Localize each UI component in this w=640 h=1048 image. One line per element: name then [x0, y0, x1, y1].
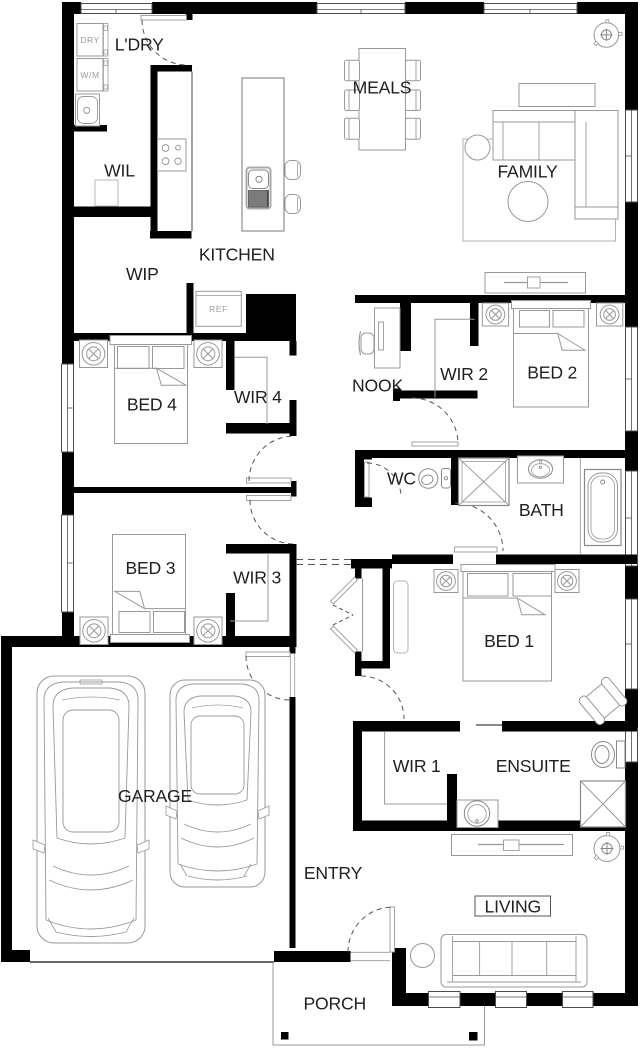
svg-text:ENSUITE: ENSUITE — [496, 756, 571, 776]
svg-text:PORCH: PORCH — [304, 994, 367, 1014]
svg-text:GARAGE: GARAGE — [118, 786, 192, 806]
svg-text:REF: REF — [209, 304, 228, 314]
svg-text:WIR 1: WIR 1 — [393, 756, 441, 776]
svg-text:NOOK: NOOK — [352, 376, 403, 396]
svg-text:L'DRY: L'DRY — [115, 35, 164, 55]
svg-text:WIL: WIL — [104, 160, 135, 180]
svg-text:BATH: BATH — [519, 500, 564, 520]
svg-text:DRY: DRY — [80, 35, 100, 45]
svg-text:ENTRY: ENTRY — [304, 863, 363, 883]
svg-text:BED 1: BED 1 — [484, 631, 534, 651]
svg-text:FAMILY: FAMILY — [497, 162, 558, 182]
svg-text:WIP: WIP — [126, 264, 159, 284]
svg-text:BED 3: BED 3 — [125, 558, 175, 578]
svg-text:BED 4: BED 4 — [127, 395, 177, 415]
svg-text:WIR 3: WIR 3 — [233, 568, 281, 588]
svg-text:KITCHEN: KITCHEN — [199, 244, 275, 264]
svg-text:WIR 4: WIR 4 — [234, 387, 282, 407]
svg-text:W/M: W/M — [80, 70, 99, 80]
svg-text:BED 2: BED 2 — [527, 363, 577, 383]
svg-text:WC: WC — [387, 469, 416, 489]
svg-text:MEALS: MEALS — [353, 78, 412, 98]
svg-text:LIVING: LIVING — [485, 897, 542, 917]
svg-text:WIR 2: WIR 2 — [440, 364, 488, 384]
